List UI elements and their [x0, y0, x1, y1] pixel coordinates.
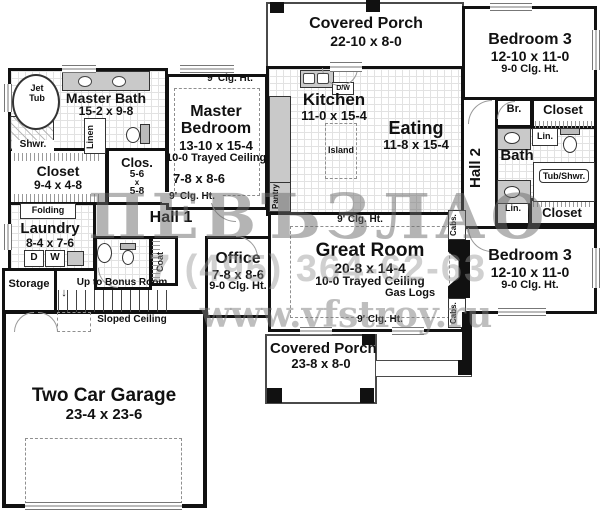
- laundry-sink-icon: [67, 251, 84, 266]
- island-label: Island: [326, 146, 356, 155]
- jet-tub-label2: Tub: [18, 94, 56, 103]
- window: [392, 327, 424, 335]
- master-bedroom-ceiling: 10-0 Trayed Ceiling: [166, 153, 266, 165]
- tub-shwr-label: Tub/Shwr.: [534, 172, 594, 181]
- stairs-treads: [58, 290, 168, 312]
- door-swing: [468, 100, 492, 124]
- garage-dims: 23-4 x 23-6: [48, 407, 160, 423]
- garage-door-zone: [25, 438, 182, 504]
- master-vanity-counter: [62, 71, 150, 91]
- window: [180, 65, 234, 73]
- bedroom3-top-name: Bedroom 3: [468, 32, 592, 49]
- bedroom3-bottom-dims: 12-10 x 11-0: [468, 265, 592, 280]
- toilet-tank-icon: [120, 243, 136, 250]
- bedroom3-bottom-name: Bedroom 3: [468, 248, 592, 265]
- linen-label: Linen: [86, 121, 104, 153]
- closet-rod-hatch: [14, 153, 102, 161]
- shower-label: Shwr.: [12, 140, 54, 151]
- bedroom3-top-clg: 9-0 Clg. Ht.: [468, 64, 592, 76]
- folding-label: Folding: [22, 206, 74, 215]
- garage-name: Two Car Garage: [28, 386, 180, 406]
- closet-topright-label: Closet: [533, 103, 593, 117]
- closet-rod-hatch: [535, 121, 593, 128]
- clg9-label: 9' Clg. Ht.: [330, 215, 390, 226]
- toilet-tank-icon: [140, 124, 150, 144]
- clg9-label: 9' Clg. Ht.: [162, 192, 222, 203]
- small-closet-name: Clos.: [110, 156, 164, 170]
- bedroom3-bottom-clg: 9-0 Clg. Ht.: [468, 280, 592, 292]
- bath-label: Bath: [495, 148, 539, 164]
- storage-label: Storage: [4, 279, 54, 291]
- sloped-ceiling-outline: [57, 312, 91, 332]
- washer-label: W: [45, 253, 65, 264]
- sink-icon: [504, 186, 520, 198]
- kitchen-sink-icon: [303, 73, 315, 84]
- bedroom3-top-dims: 12-10 x 11-0: [468, 49, 592, 64]
- sink-icon: [112, 76, 126, 87]
- window: [62, 65, 96, 73]
- laundry-name: Laundry: [10, 221, 90, 237]
- bottom-porch-dims: 23-8 x 8-0: [278, 357, 364, 371]
- window: [4, 84, 12, 112]
- window: [498, 308, 546, 316]
- coat-label: Coat: [156, 243, 172, 281]
- up-bonus-label: Up to Bonus Room: [70, 278, 174, 289]
- storage-room: [2, 268, 57, 314]
- halfbath-sink-icon: [97, 243, 112, 263]
- sink-icon: [78, 76, 92, 87]
- hall1-label: Hall 1: [136, 210, 206, 227]
- gas-logs-label: Gas Logs: [378, 288, 442, 300]
- floor-plan: ↓: [0, 0, 600, 514]
- window: [300, 327, 332, 335]
- toilet-bowl-icon: [563, 136, 577, 153]
- hall2-label: Hall 2: [468, 140, 490, 196]
- toilet-bowl-icon: [126, 127, 140, 143]
- clg9-label: 9' Clg. Ht.: [350, 315, 410, 326]
- window: [592, 30, 600, 70]
- porch-column: [270, 2, 284, 13]
- garage-door-opening: [25, 502, 182, 510]
- dishwasher-label: D/W: [332, 85, 354, 92]
- master-closet-dims: 9-4 x 4-8: [14, 179, 102, 192]
- cabs-bottom-label: Cabs.: [450, 300, 464, 326]
- lin-top-label: Lin.: [533, 132, 557, 141]
- master-closet-name: Closet: [14, 164, 102, 179]
- br-label: Br.: [498, 104, 530, 116]
- laundry-dims: 8-4 x 7-6: [10, 237, 90, 250]
- office-clg: 9-0 Clg. Ht.: [206, 281, 270, 293]
- porch-column: [360, 388, 374, 403]
- closet-rod-hatch: [14, 194, 102, 202]
- stairs-direction-arrow: ↓: [58, 288, 70, 300]
- clg9-label: 9' Clg. Ht.: [200, 74, 260, 85]
- window: [592, 248, 600, 288]
- master-bedroom-name1: Master: [166, 104, 266, 121]
- kitchen-name: Kitchen: [290, 91, 378, 109]
- sink-icon: [504, 132, 520, 144]
- sloped-ceiling-label: Sloped Ceiling: [96, 315, 168, 326]
- porch-column: [267, 388, 282, 403]
- master-bedroom-dims: 13-10 x 15-4: [166, 139, 266, 153]
- master-bath-dims: 15-2 x 9-8: [58, 105, 154, 118]
- dryer-label: D: [24, 253, 44, 264]
- office-name: Office: [206, 251, 270, 268]
- kitchen-dims: 11-0 x 15-4: [288, 109, 380, 123]
- closet-bottomright-label: Closet: [531, 206, 593, 220]
- master-bedroom-name2: Bedroom: [166, 121, 266, 138]
- toilet-bowl-icon: [122, 250, 134, 265]
- eating-name: Eating: [382, 119, 450, 138]
- cabs-top-label: Cabs.: [450, 212, 464, 238]
- pantry-label: Pantry: [272, 184, 288, 210]
- master-sitting-dims: 7-8 x 8-6: [168, 172, 230, 186]
- small-closet-h: 5-8: [110, 187, 164, 198]
- bottom-porch-name: Covered Porch: [270, 341, 372, 357]
- top-porch-name: Covered Porch: [286, 16, 446, 33]
- window: [490, 3, 532, 11]
- kitchen-sink-icon: [317, 73, 329, 84]
- great-room-ceiling: 10-0 Trayed Ceiling: [312, 275, 428, 288]
- top-porch-dims: 22-10 x 8-0: [296, 34, 436, 49]
- tub-shwr-chip: Tub/Shwr.: [539, 169, 589, 183]
- toilet-tank-icon: [560, 128, 580, 135]
- lin-bottom-label: Lin.: [497, 204, 529, 213]
- window: [330, 62, 362, 72]
- eating-dims: 11-8 x 15-4: [378, 138, 454, 152]
- porch-column: [366, 0, 380, 12]
- great-room-name: Great Room: [312, 241, 428, 261]
